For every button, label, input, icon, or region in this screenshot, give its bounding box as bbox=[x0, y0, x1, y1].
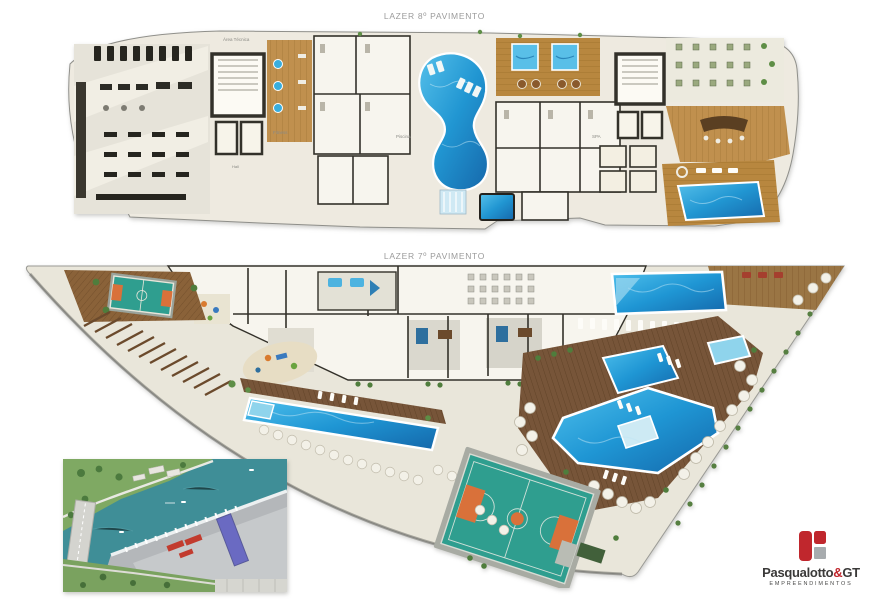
brand-name: Pasqualotto&GT bbox=[752, 565, 869, 580]
brand-name-suffix: GT bbox=[842, 565, 859, 580]
page-background: LAZER 8º PAVIMENTO LAZER 7º PAVIMENTO bbox=[0, 0, 869, 600]
bar-lounge bbox=[666, 106, 790, 162]
restaurant-zone bbox=[666, 38, 786, 102]
corner-bar-deck bbox=[708, 266, 844, 310]
spa-deck bbox=[496, 38, 600, 96]
label-hall: Hall bbox=[232, 164, 239, 169]
right-pool-deck bbox=[662, 160, 780, 226]
brand-logo-mark bbox=[793, 531, 829, 563]
gym-zone bbox=[74, 44, 210, 214]
brand-logo: Pasqualotto&GT EMPREENDIMENTOS bbox=[752, 531, 869, 587]
brand-tagline: EMPREENDIMENTOS bbox=[752, 581, 869, 587]
aerial-photo bbox=[63, 459, 287, 592]
floor8-plan: Área Técnica Hall Fitness bbox=[60, 24, 805, 236]
left-corner-deck bbox=[64, 270, 206, 322]
floor8-title: LAZER 8º PAVIMENTO bbox=[0, 11, 869, 21]
label-piscina: Piscina bbox=[396, 134, 411, 139]
stair-core-left: Hall bbox=[212, 54, 264, 169]
label-spa: SPA bbox=[592, 134, 601, 139]
brand-name-main: Pasqualotto bbox=[762, 565, 833, 580]
label-fitness: Fitness bbox=[273, 130, 288, 135]
relax-lounge-deck bbox=[267, 40, 312, 142]
mini-court bbox=[107, 273, 177, 319]
brand-name-ampersand: & bbox=[833, 565, 842, 580]
label-area-tecnica: Área Técnica bbox=[223, 36, 250, 42]
